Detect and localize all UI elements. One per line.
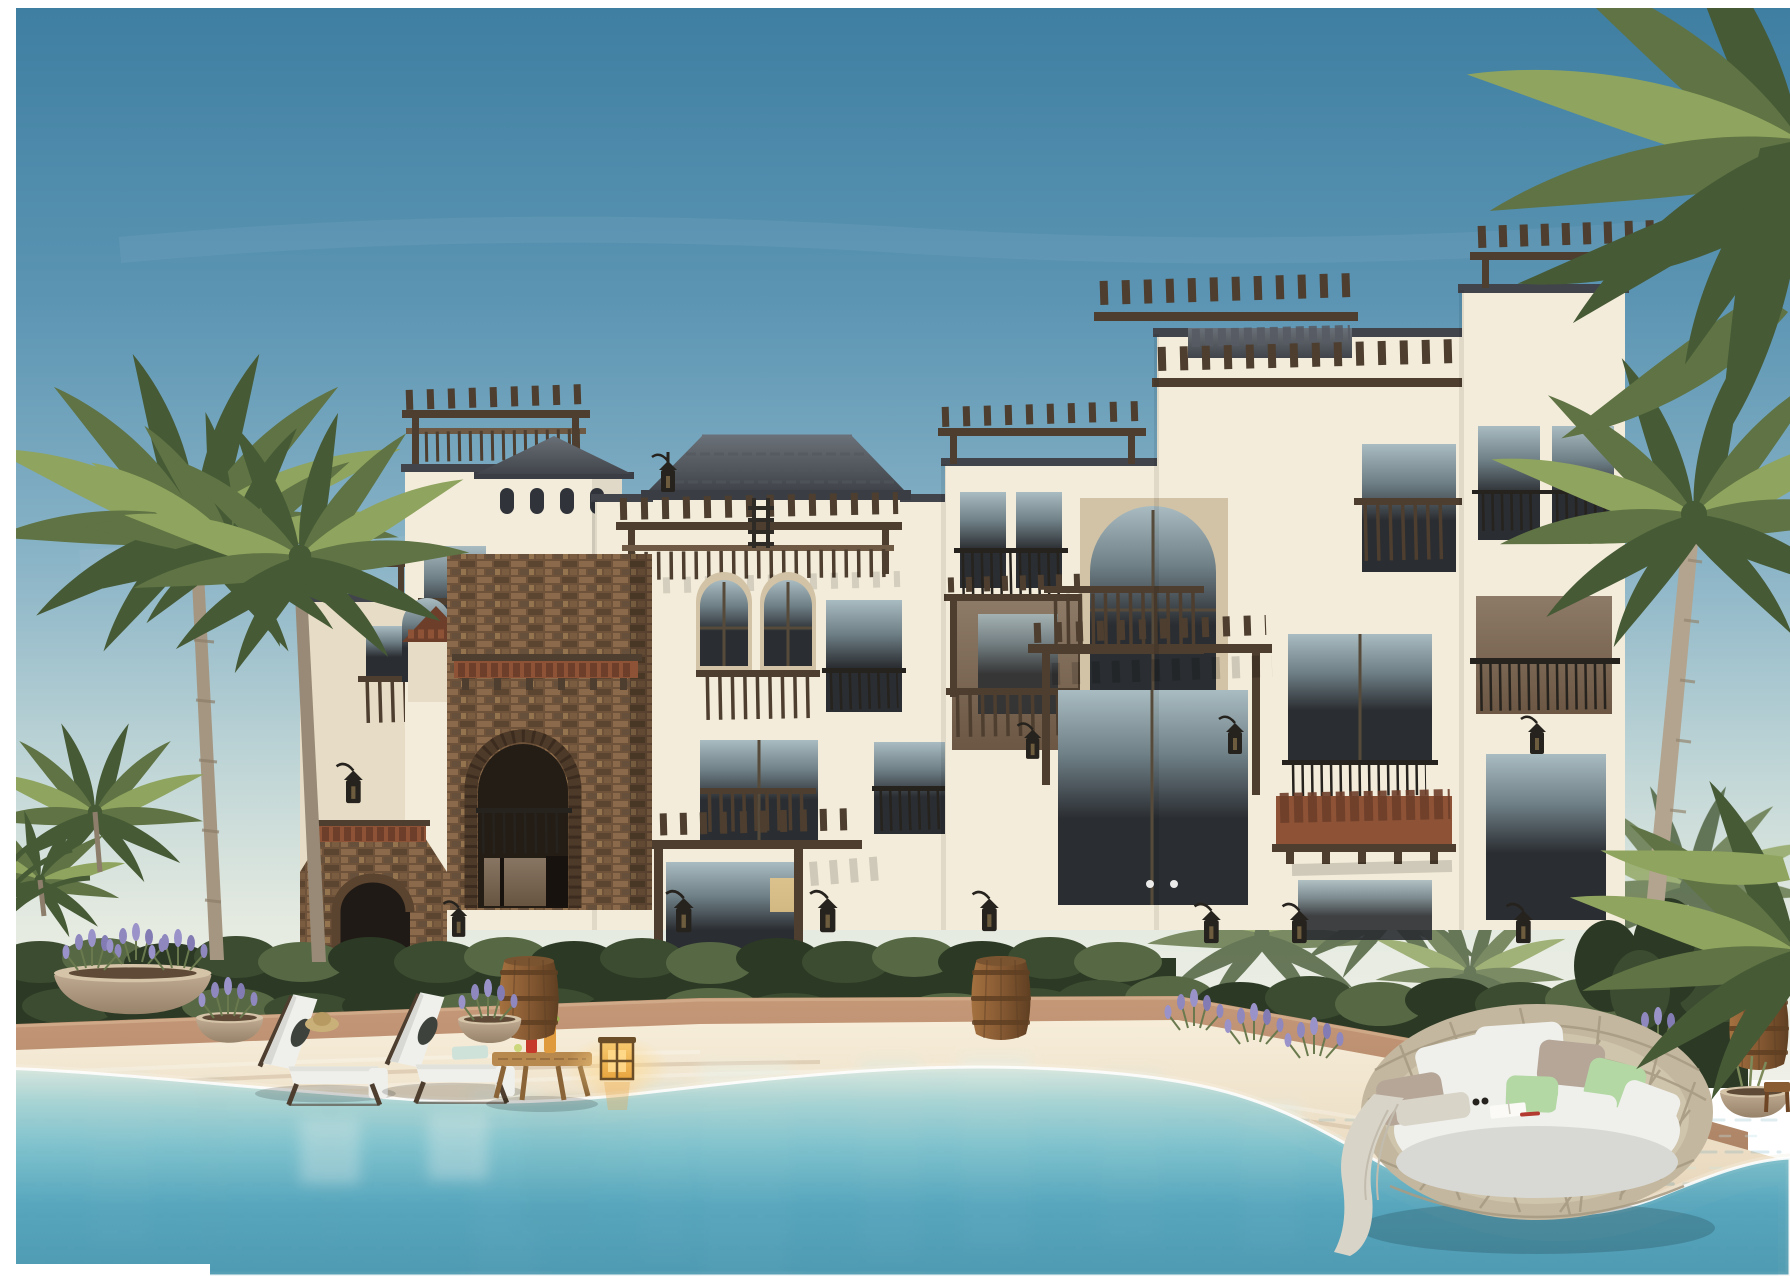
folded-towel [452, 1045, 489, 1060]
villa-scene: Seafront Mediterranean villas — architec… [0, 0, 1790, 1276]
lime-wedge [514, 1044, 522, 1052]
bottom-left-border [0, 1264, 210, 1276]
left-border [0, 0, 16, 1276]
tower-balcony [1354, 444, 1466, 572]
juliet-balcony [706, 696, 812, 698]
top-border [0, 0, 1790, 8]
rendering-canvas: Seafront Mediterranean villas — architec… [0, 0, 1790, 1276]
